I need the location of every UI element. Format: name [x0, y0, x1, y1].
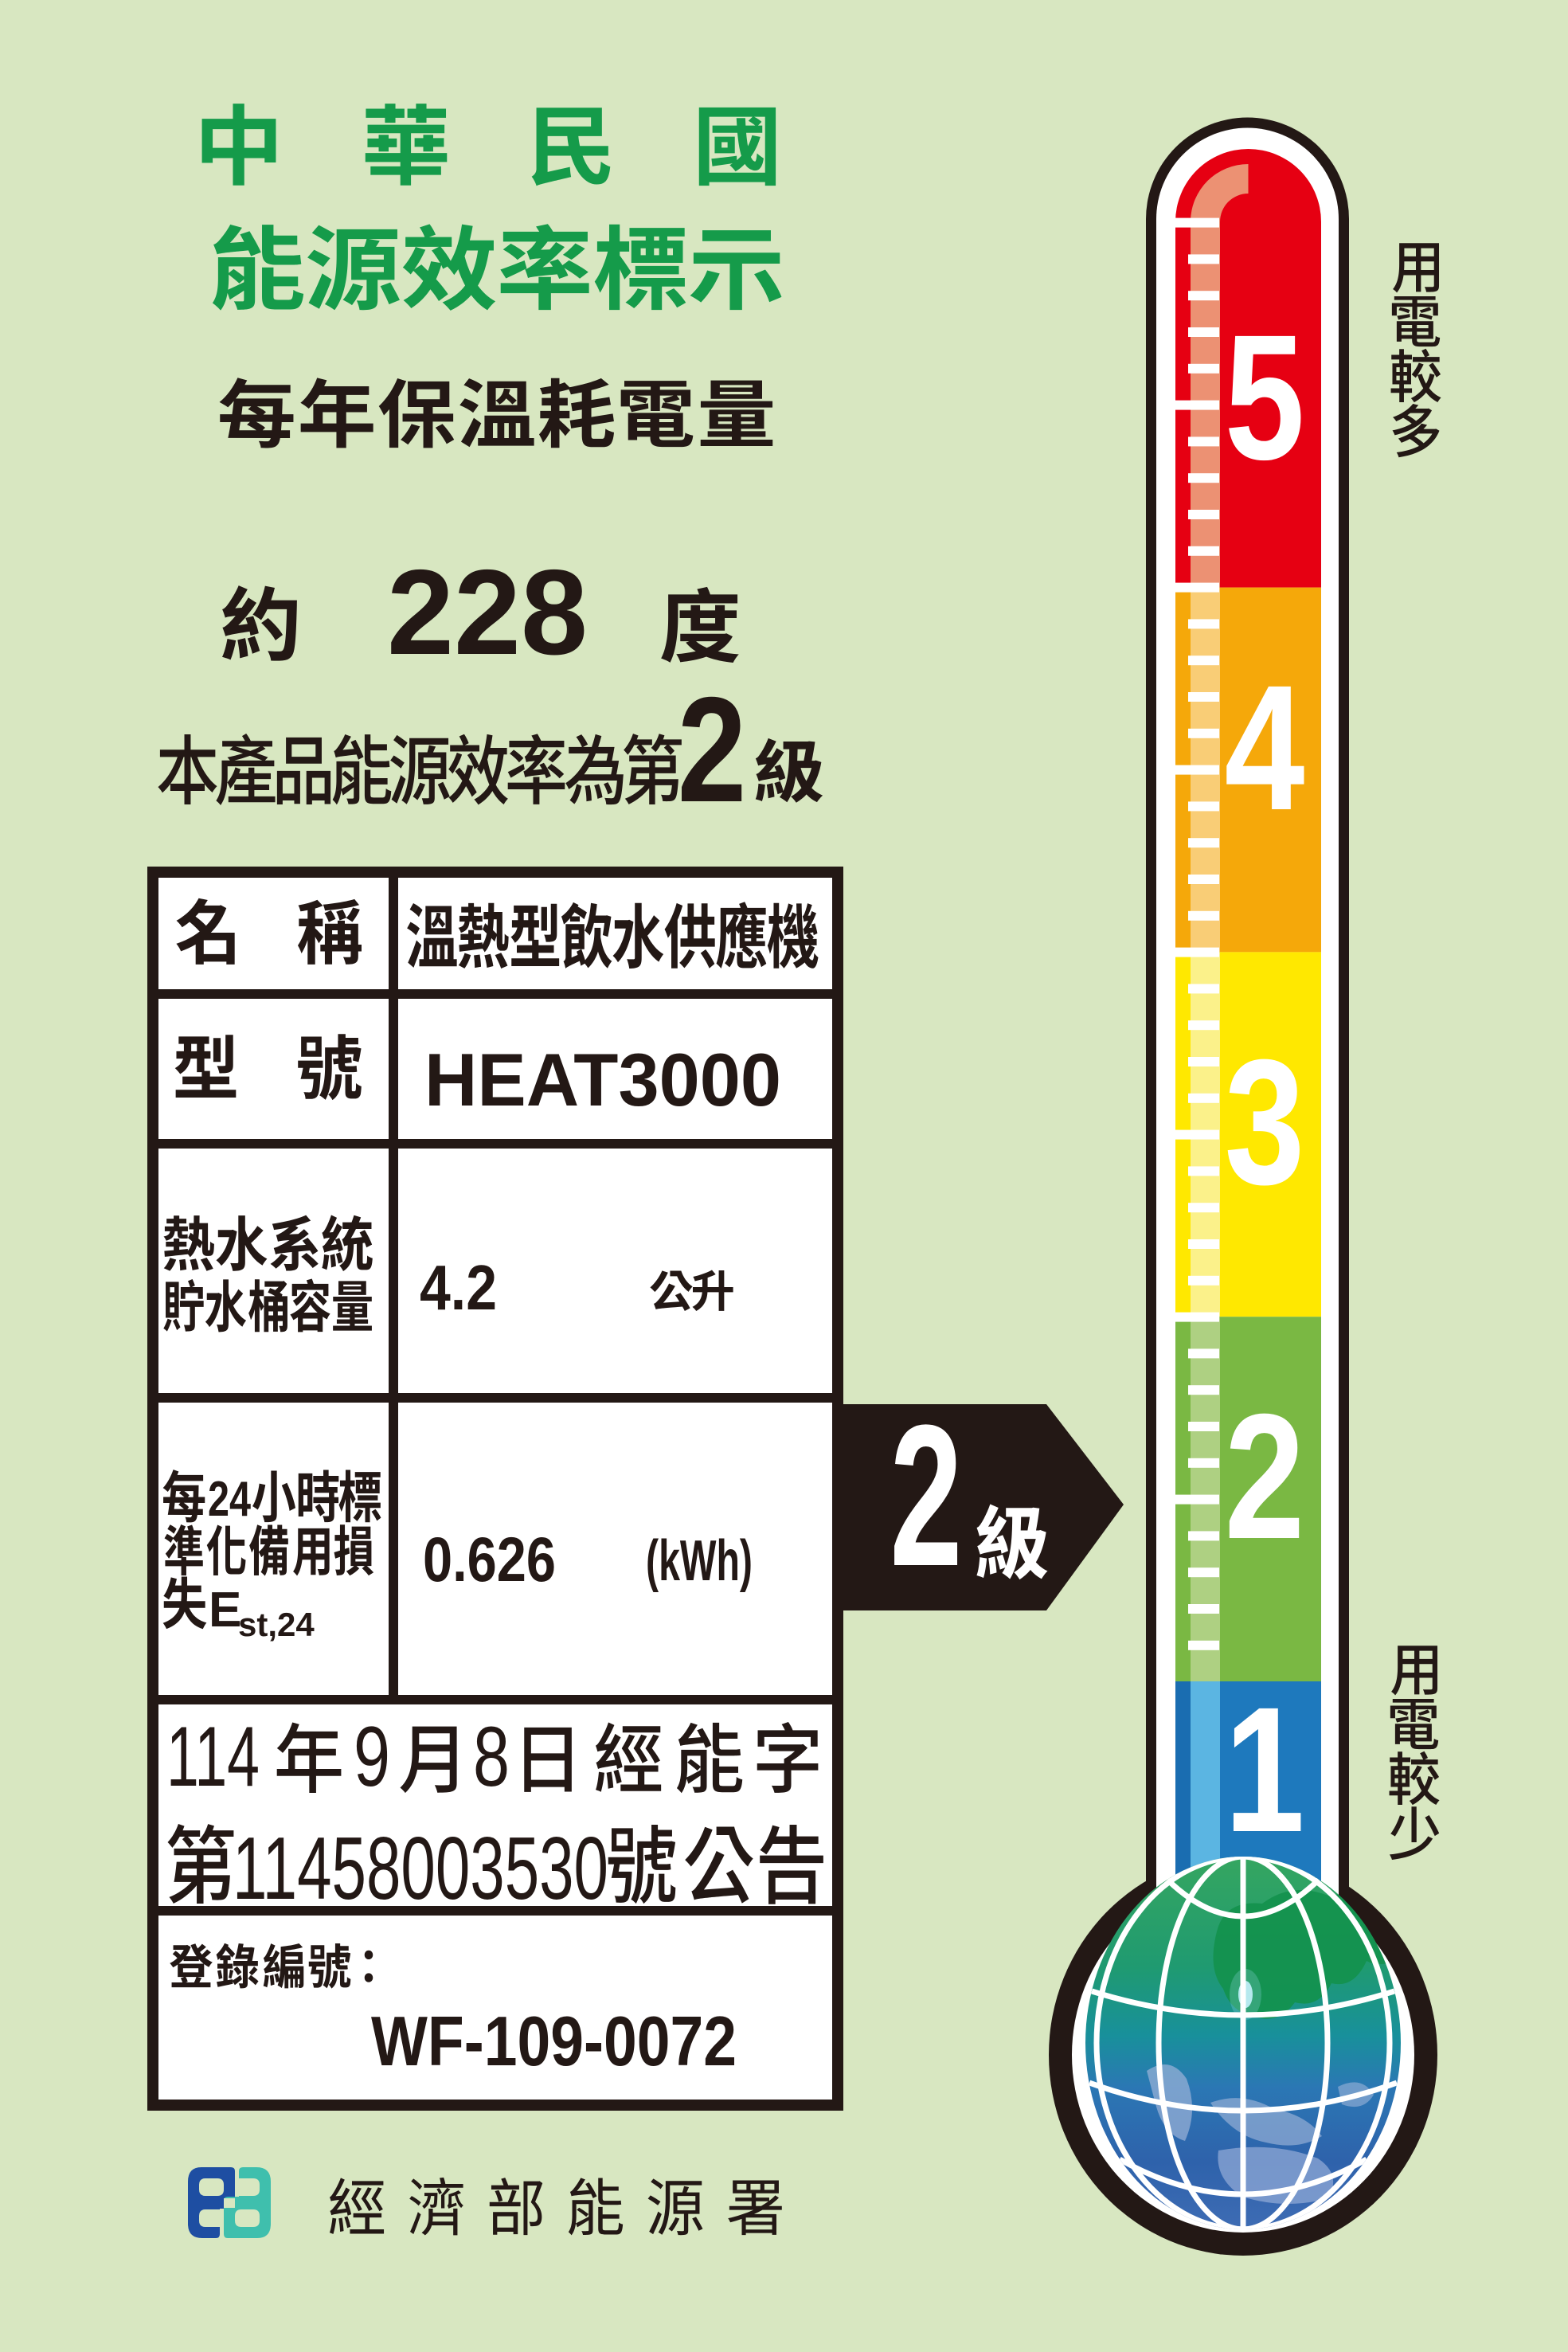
svg-text:114: 114: [166, 1708, 260, 1804]
svg-text:4.2: 4.2: [420, 1252, 497, 1323]
svg-text:st,24: st,24: [238, 1606, 315, 1643]
svg-text:1: 1: [1225, 1670, 1305, 1870]
svg-text:(kWh): (kWh): [646, 1529, 753, 1593]
svg-text:4: 4: [1225, 648, 1305, 848]
svg-text:HEAT3000: HEAT3000: [424, 1038, 781, 1121]
svg-text:228: 228: [387, 545, 588, 680]
svg-text:E: E: [209, 1583, 241, 1638]
svg-text:24: 24: [208, 1472, 251, 1527]
svg-text:2: 2: [890, 1383, 962, 1608]
svg-text:2: 2: [678, 666, 747, 833]
svg-text:11458003530: 11458003530: [233, 1819, 608, 1918]
svg-text:0.626: 0.626: [423, 1524, 556, 1595]
svg-text:8: 8: [473, 1708, 510, 1804]
svg-text:5: 5: [1225, 298, 1305, 498]
svg-text:3: 3: [1225, 1023, 1305, 1223]
svg-text:9: 9: [354, 1708, 390, 1804]
svg-text:2: 2: [1225, 1377, 1305, 1577]
svg-text:WF-109-0072: WF-109-0072: [371, 2002, 737, 2080]
